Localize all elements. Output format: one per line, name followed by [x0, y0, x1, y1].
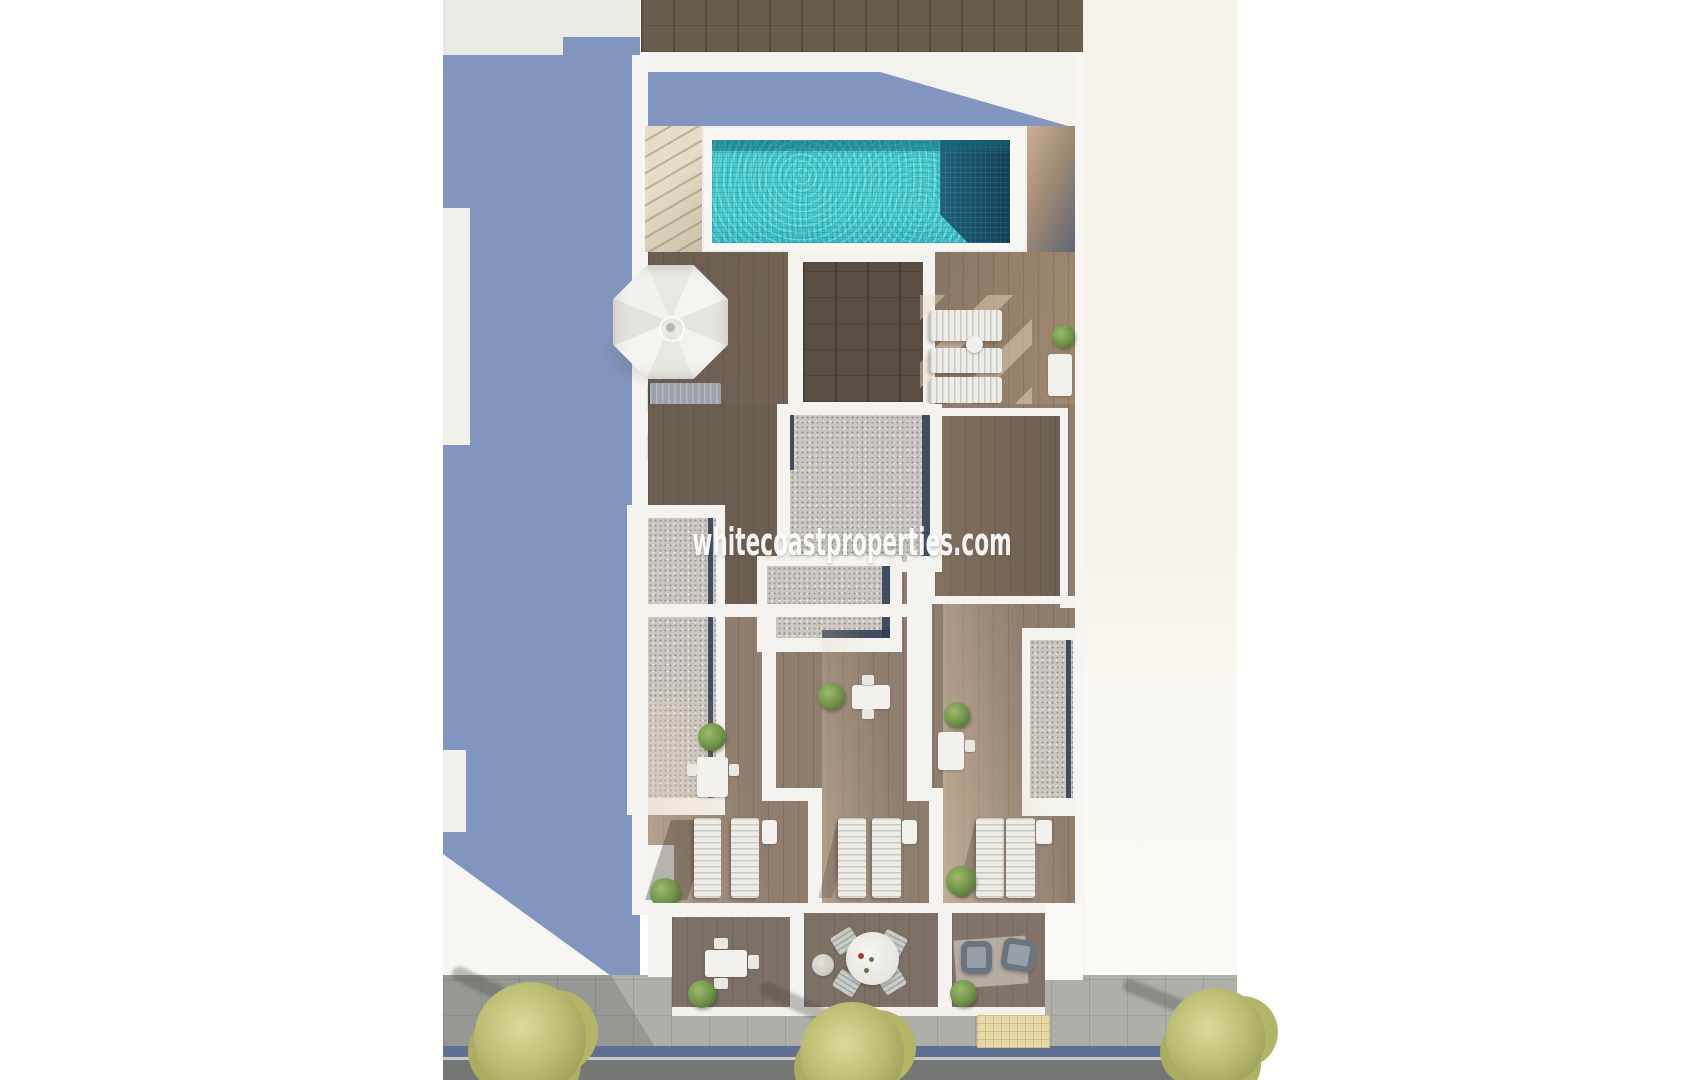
deck-plant [1052, 325, 1075, 348]
terrace-a-chair-left [687, 764, 697, 776]
balcony-a-chair-bottom [714, 978, 728, 989]
table-decor-green [864, 968, 869, 973]
lounger-a-table [762, 820, 777, 844]
wall-c-top-filler [1060, 596, 1075, 608]
core-lower-trim-right [882, 566, 890, 638]
lounger-c1 [976, 818, 1004, 898]
core-lower-trim-bottom [822, 630, 890, 638]
terrace-b-chair-top [862, 675, 874, 685]
lounger-c2 [1006, 818, 1035, 898]
lounger-c-table [1036, 820, 1052, 844]
balcony-c-armchair-1 [961, 941, 992, 974]
parasol-pole [666, 323, 675, 332]
terrace-a-table [697, 757, 728, 797]
pool-stairs [645, 126, 705, 252]
white-lounger-1 [930, 310, 1002, 341]
wall-ab-upper [762, 604, 776, 796]
balcony-left-wall [648, 903, 672, 977]
balcony-a-chair-right [748, 955, 759, 969]
left-roof-cutout-lower [443, 750, 466, 832]
street-tree-3 [1166, 988, 1266, 1080]
balcony-a-chair-top [714, 938, 728, 949]
core-upper-trim-left [790, 415, 794, 470]
east-wall [1075, 52, 1085, 980]
watermark-text: whitecoastproperties.com [692, 523, 1011, 561]
building-shadow-main [443, 55, 640, 830]
terrace-c-chair [965, 740, 975, 752]
top-wood-deck [641, 0, 1083, 52]
table-decor-dark [869, 957, 874, 962]
east-gravel-trim [1066, 640, 1071, 798]
balcony-c-armchair-2 [1000, 937, 1038, 974]
balcony-a-plant [688, 980, 716, 1008]
wall-bc-lower [929, 788, 943, 916]
pergola-roof [803, 262, 923, 402]
lounger-b2 [872, 818, 901, 898]
pool-east-deck [1027, 126, 1075, 252]
room-wood-roof [935, 416, 1060, 596]
terrace-a-plant [698, 723, 726, 751]
lounger-b-table [902, 820, 917, 844]
table-decor-red [858, 953, 864, 959]
white-lounger-2 [930, 348, 1002, 373]
balcony-c-plant [950, 980, 977, 1007]
building-shadow-step [563, 37, 640, 55]
terrace-a-chair-right [729, 764, 739, 776]
render-canvas: whitecoastproperties.com [0, 0, 1700, 1080]
deck-table [1048, 354, 1072, 396]
terrace-c-plant [944, 702, 970, 728]
lounger-c-plant [946, 866, 976, 896]
entrance-mat [977, 1015, 1050, 1048]
right-side-strip [1083, 0, 1237, 980]
pool-top-shade [712, 140, 1010, 151]
lounger-b1 [838, 818, 866, 898]
balcony-b-side-table [812, 954, 834, 976]
left-roof-cutout-upper [443, 208, 470, 445]
lounger-a2 [731, 818, 759, 898]
lounger-a1 [694, 818, 721, 898]
terrace-b-table [852, 685, 890, 709]
balcony-right-wall [1045, 903, 1083, 980]
parasol-table [966, 336, 983, 353]
wall-terraces-top [648, 604, 907, 617]
terrace-b-chair-bottom [862, 709, 874, 719]
terrace-b-plant [818, 683, 845, 710]
wall-bc-upper [907, 556, 932, 796]
terrace-c-table [938, 732, 964, 770]
core-lower-gravel [767, 566, 890, 638]
white-lounger-3 [930, 377, 1002, 403]
balcony-a-table [705, 950, 747, 977]
